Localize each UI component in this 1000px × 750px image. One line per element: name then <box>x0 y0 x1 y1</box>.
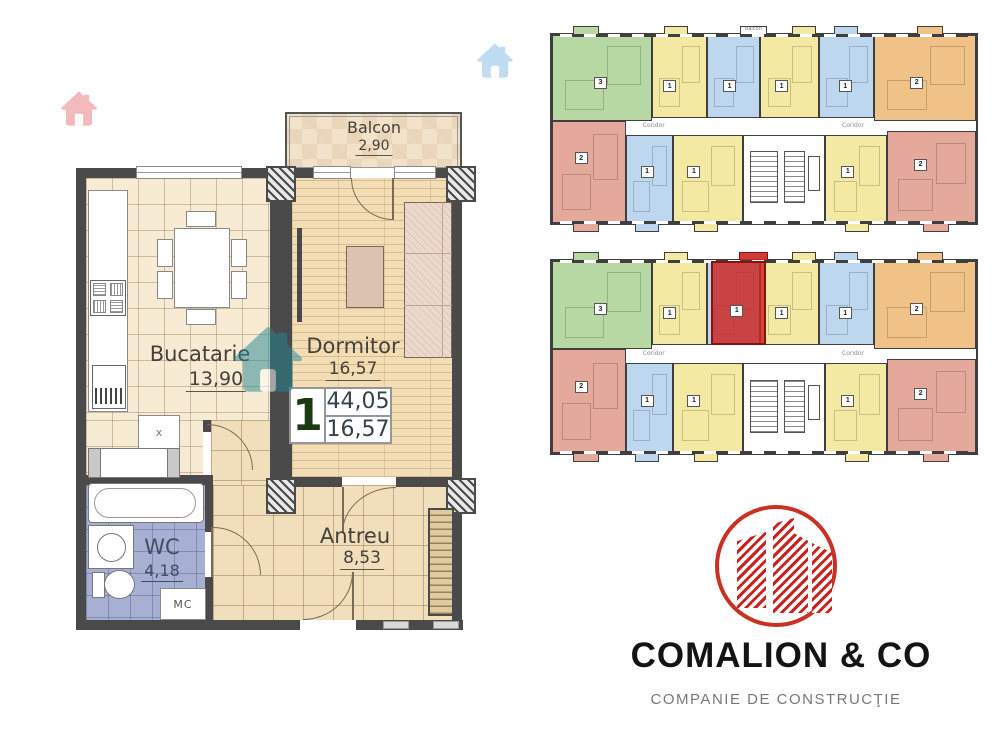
balcony-tab <box>845 224 869 232</box>
balcony-area: 2,90 <box>355 138 392 154</box>
unit-chip: 1 <box>723 80 736 92</box>
balcony-tab <box>834 26 858 34</box>
hallway-area: 8,53 <box>340 548 384 568</box>
balcony-tab <box>792 252 816 260</box>
balcony-tab <box>635 454 659 462</box>
unit-chip: 1 <box>641 166 654 178</box>
highlighted-unit: 1 <box>711 261 766 345</box>
facade-windows-bottom <box>560 451 967 454</box>
entry-door-leaf <box>352 572 354 620</box>
company-tagline: COMPANIE DE CONSTRUCŢIE <box>651 691 902 708</box>
balcony-tab <box>573 224 599 232</box>
stove-burner <box>93 300 106 313</box>
tv-panel <box>297 228 302 322</box>
unit-chip: 2 <box>575 152 588 164</box>
corridor-label: Coridor <box>643 350 665 357</box>
company-name: COMALION & CO <box>631 636 932 676</box>
corridor-label: Coridor <box>842 350 864 357</box>
wall-wc-hall-a <box>205 475 213 532</box>
stair-core <box>743 363 826 453</box>
unit-blue-2: 1 <box>819 35 874 118</box>
pillar-bottom-mid <box>266 478 296 514</box>
unit-chip: 2 <box>575 381 588 393</box>
corridor-label: Coridor <box>643 122 665 129</box>
unit-blue-1: 1 <box>707 35 760 118</box>
unit-chip: 1 <box>841 395 854 407</box>
highlighted-unit-balcony <box>739 252 768 260</box>
unit-number: 1 <box>291 389 326 442</box>
stove-burner <box>93 283 106 296</box>
sofa-backrest <box>442 202 443 358</box>
balcony-tab <box>845 454 869 462</box>
unit-yellow-4: 1 <box>825 363 886 453</box>
unit-chip: 1 <box>687 395 700 407</box>
hall-window-left <box>383 621 409 629</box>
bathtub-inner <box>94 488 196 518</box>
unit-chip: 1 <box>839 307 852 319</box>
stairs <box>750 380 777 433</box>
unit-salmon-left: 2 <box>552 349 626 453</box>
house-watermark-pink-icon <box>60 90 98 128</box>
unit-yellow-3: 1 <box>673 135 743 223</box>
balcony-tab-white: Balcon <box>740 26 767 34</box>
toilet-bowl <box>104 570 135 599</box>
hallway-label: Antreu <box>320 524 390 548</box>
chair <box>186 309 216 325</box>
unit-chip: 1 <box>841 166 854 178</box>
unit-chip: 3 <box>594 303 607 315</box>
balcony-tab <box>664 26 688 34</box>
unit-blue-2: 1 <box>819 261 874 345</box>
unit-chip: 1 <box>839 80 852 92</box>
stove-burner <box>110 283 123 296</box>
sink-basin <box>97 533 126 562</box>
pillar-top-mid <box>266 166 296 202</box>
bedroom-label: Dormitor <box>306 334 399 358</box>
facade-windows-bottom <box>560 221 967 224</box>
unit-chip: 2 <box>910 303 923 315</box>
wall-left <box>76 168 86 630</box>
unit-yellow-1: 1 <box>652 35 707 118</box>
unit-green-3rooms: 3 <box>552 35 652 121</box>
rug <box>346 246 384 308</box>
fridge-vent <box>95 388 123 404</box>
washing-machine: MC <box>160 588 206 620</box>
unit-badge: 1 44,05 16,57 <box>289 387 392 444</box>
unit-chip: 1 <box>641 395 654 407</box>
unit-living-area: 16,57 <box>326 417 390 443</box>
elevator <box>808 385 819 420</box>
wc-area: 4,18 <box>141 561 183 580</box>
sofa <box>404 202 452 358</box>
chair <box>186 211 216 227</box>
stove-burner <box>110 300 123 313</box>
unit-green-3rooms: 3 <box>552 261 652 349</box>
bedroom-window-right <box>394 166 436 179</box>
siteplan-balcony-label: Balcon <box>741 27 766 32</box>
unit-blue-3: 1 <box>626 363 673 453</box>
balcony-label: Balcon <box>347 118 401 137</box>
chair <box>157 271 173 299</box>
unit-salmon-right: 2 <box>887 359 976 453</box>
bench-armrest <box>88 448 101 478</box>
balcony-tab <box>917 26 943 34</box>
stairs <box>784 151 805 203</box>
balcony-tab <box>635 224 659 232</box>
kitchen-window <box>136 166 242 179</box>
chair <box>231 271 247 299</box>
highlighted-unit-chip: 1 <box>730 305 743 317</box>
balcony-tab <box>694 454 718 462</box>
balcony-tab <box>573 26 599 34</box>
stairs <box>750 151 777 203</box>
unit-chip: 1 <box>775 307 788 319</box>
unit-orange: 2 <box>874 261 976 349</box>
bench-armrest <box>167 448 180 478</box>
balcony-tab <box>664 252 688 260</box>
entry-door-opening <box>300 620 356 630</box>
balcony-door-opening <box>351 168 394 178</box>
balcony-tab <box>917 252 943 260</box>
dining-table <box>174 228 230 308</box>
sofa-seam <box>404 305 452 306</box>
unit-yellow-4: 1 <box>825 135 886 223</box>
hall-window-right <box>433 621 459 629</box>
washing-machine-label: MC <box>173 598 192 611</box>
stair-core <box>743 135 826 223</box>
unit-yellow-1: 1 <box>652 261 707 345</box>
unit-yellow-2: 1 <box>760 35 819 118</box>
unit-chip: 1 <box>663 307 676 319</box>
unit-chip: 2 <box>914 159 927 171</box>
wall-bedroom-hall-a <box>292 477 342 487</box>
wardrobe <box>428 508 454 616</box>
balcony-tab <box>573 252 599 260</box>
logo-tower-right <box>812 543 832 613</box>
stairs <box>784 380 805 433</box>
unit-total-area: 44,05 <box>326 389 390 417</box>
unit-blue-3: 1 <box>626 135 673 223</box>
chair <box>231 239 247 267</box>
wall-wc-hall-b <box>205 577 213 620</box>
elevator <box>808 156 819 191</box>
unit-chip: 1 <box>663 80 676 92</box>
house-watermark-blue-icon <box>476 42 514 80</box>
unit-chip: 2 <box>910 77 923 89</box>
balcony-door-leaf <box>392 178 394 220</box>
unit-yellow-3: 1 <box>673 363 743 453</box>
siteplan-top: 3 1 1 1 1 2 2 1 1 1 2 Coridor Coridor Ba… <box>550 33 978 225</box>
unit-chip: 3 <box>594 77 607 89</box>
kitchen-sink-label: x <box>156 426 163 439</box>
balcony-tab <box>792 26 816 34</box>
corridor-label: Coridor <box>842 122 864 129</box>
unit-salmon-right: 2 <box>887 131 976 223</box>
chair <box>157 239 173 267</box>
unit-chip: 2 <box>914 388 927 400</box>
siteplan-bottom: 3 1 1 1 2 2 1 1 1 2 Coridor Coridor 1 <box>550 259 978 455</box>
flyer-canvas: Balcon 2,90 x <box>0 0 1000 750</box>
unit-chip: 1 <box>687 166 700 178</box>
balcony-tab <box>923 454 949 462</box>
unit-salmon-left: 2 <box>552 121 626 223</box>
unit-yellow-2: 1 <box>760 261 819 345</box>
facade-windows-top <box>560 34 967 37</box>
balcony-tab <box>573 454 599 462</box>
bedroom-window-left <box>313 166 351 179</box>
pillar-top-right <box>446 166 476 202</box>
unit-chip: 1 <box>775 80 788 92</box>
balcony-tab <box>834 252 858 260</box>
sofa-seam <box>404 253 452 254</box>
wc-label: WC <box>144 535 179 559</box>
house-watermark-teal-icon <box>230 326 306 394</box>
balcony-tab <box>923 224 949 232</box>
bedroom-area: 16,57 <box>326 359 381 379</box>
kitchen-sink-counter: x <box>138 415 180 449</box>
logo-tower-left <box>737 532 766 608</box>
unit-orange: 2 <box>874 35 976 121</box>
wc-door-leaf <box>211 527 213 577</box>
wall-bedroom-hall-b <box>396 477 452 487</box>
balcony-tab <box>694 224 718 232</box>
